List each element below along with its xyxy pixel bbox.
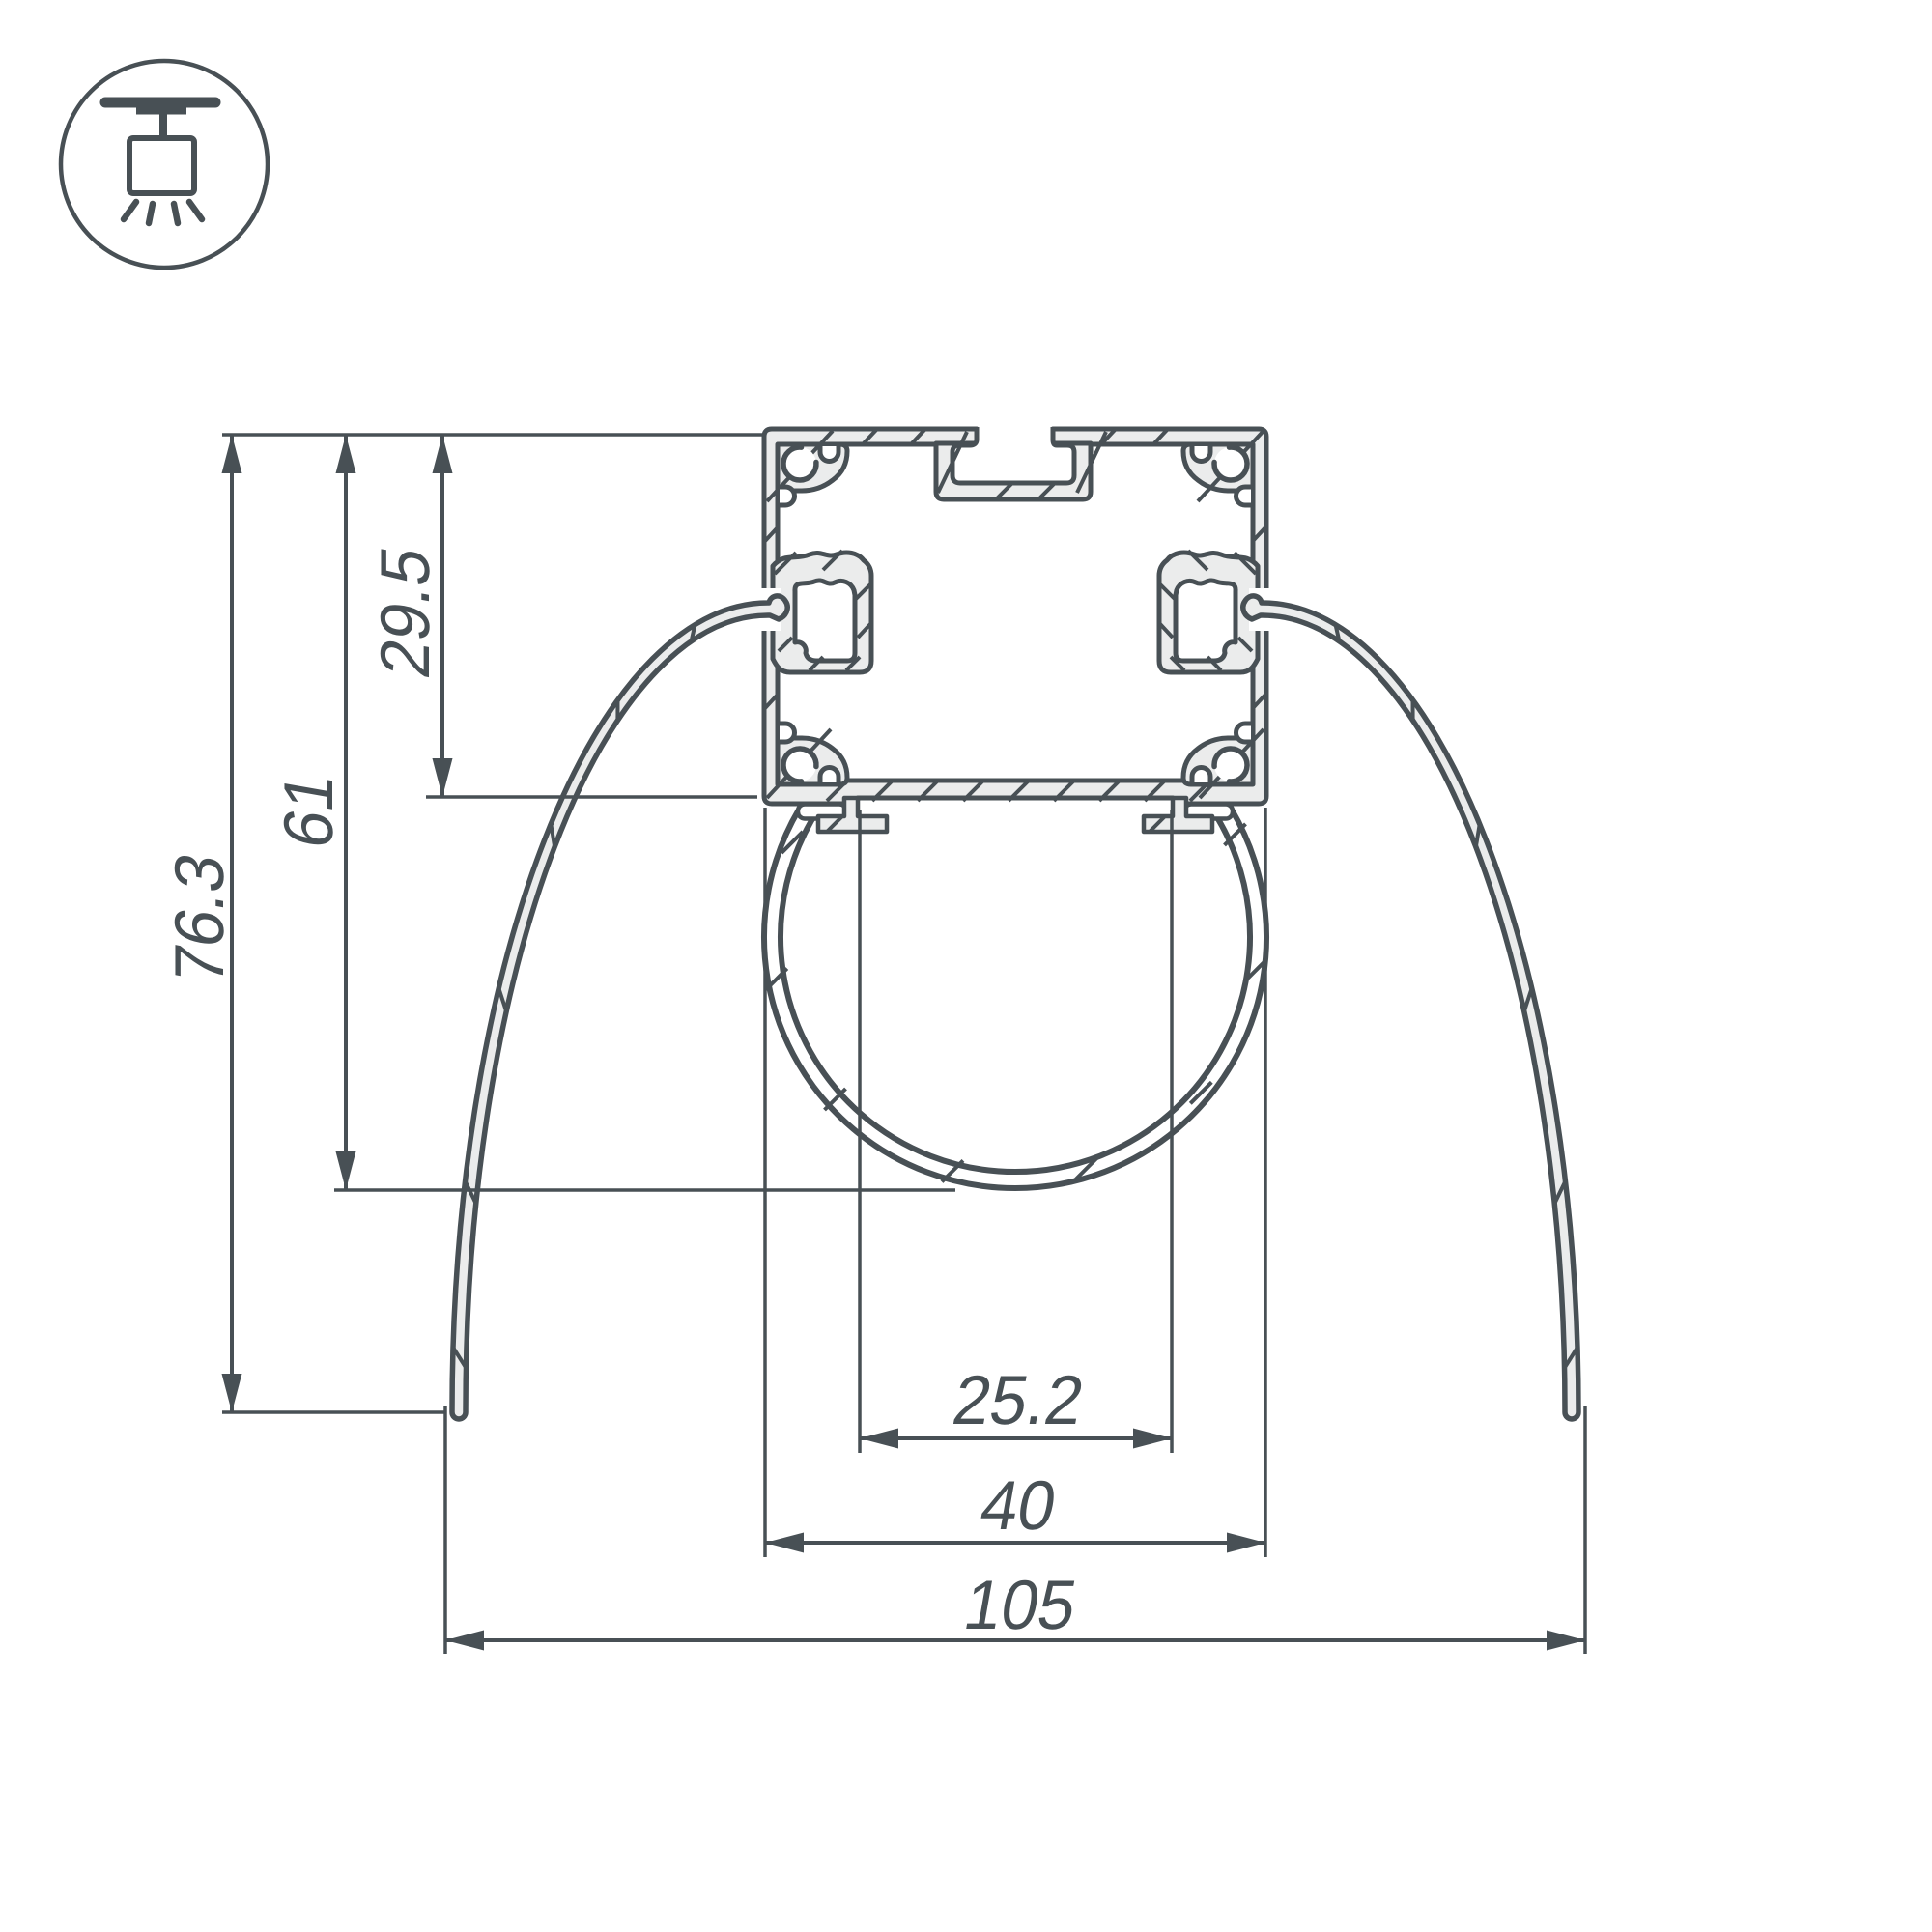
svg-text:25.2: 25.2: [948, 1362, 1090, 1439]
svg-text:61: 61: [270, 767, 348, 854]
svg-text:40: 40: [975, 1467, 1062, 1545]
svg-text:105: 105: [958, 1567, 1082, 1644]
svg-text:76.3: 76.3: [161, 847, 239, 989]
svg-text:29.5: 29.5: [367, 541, 444, 683]
